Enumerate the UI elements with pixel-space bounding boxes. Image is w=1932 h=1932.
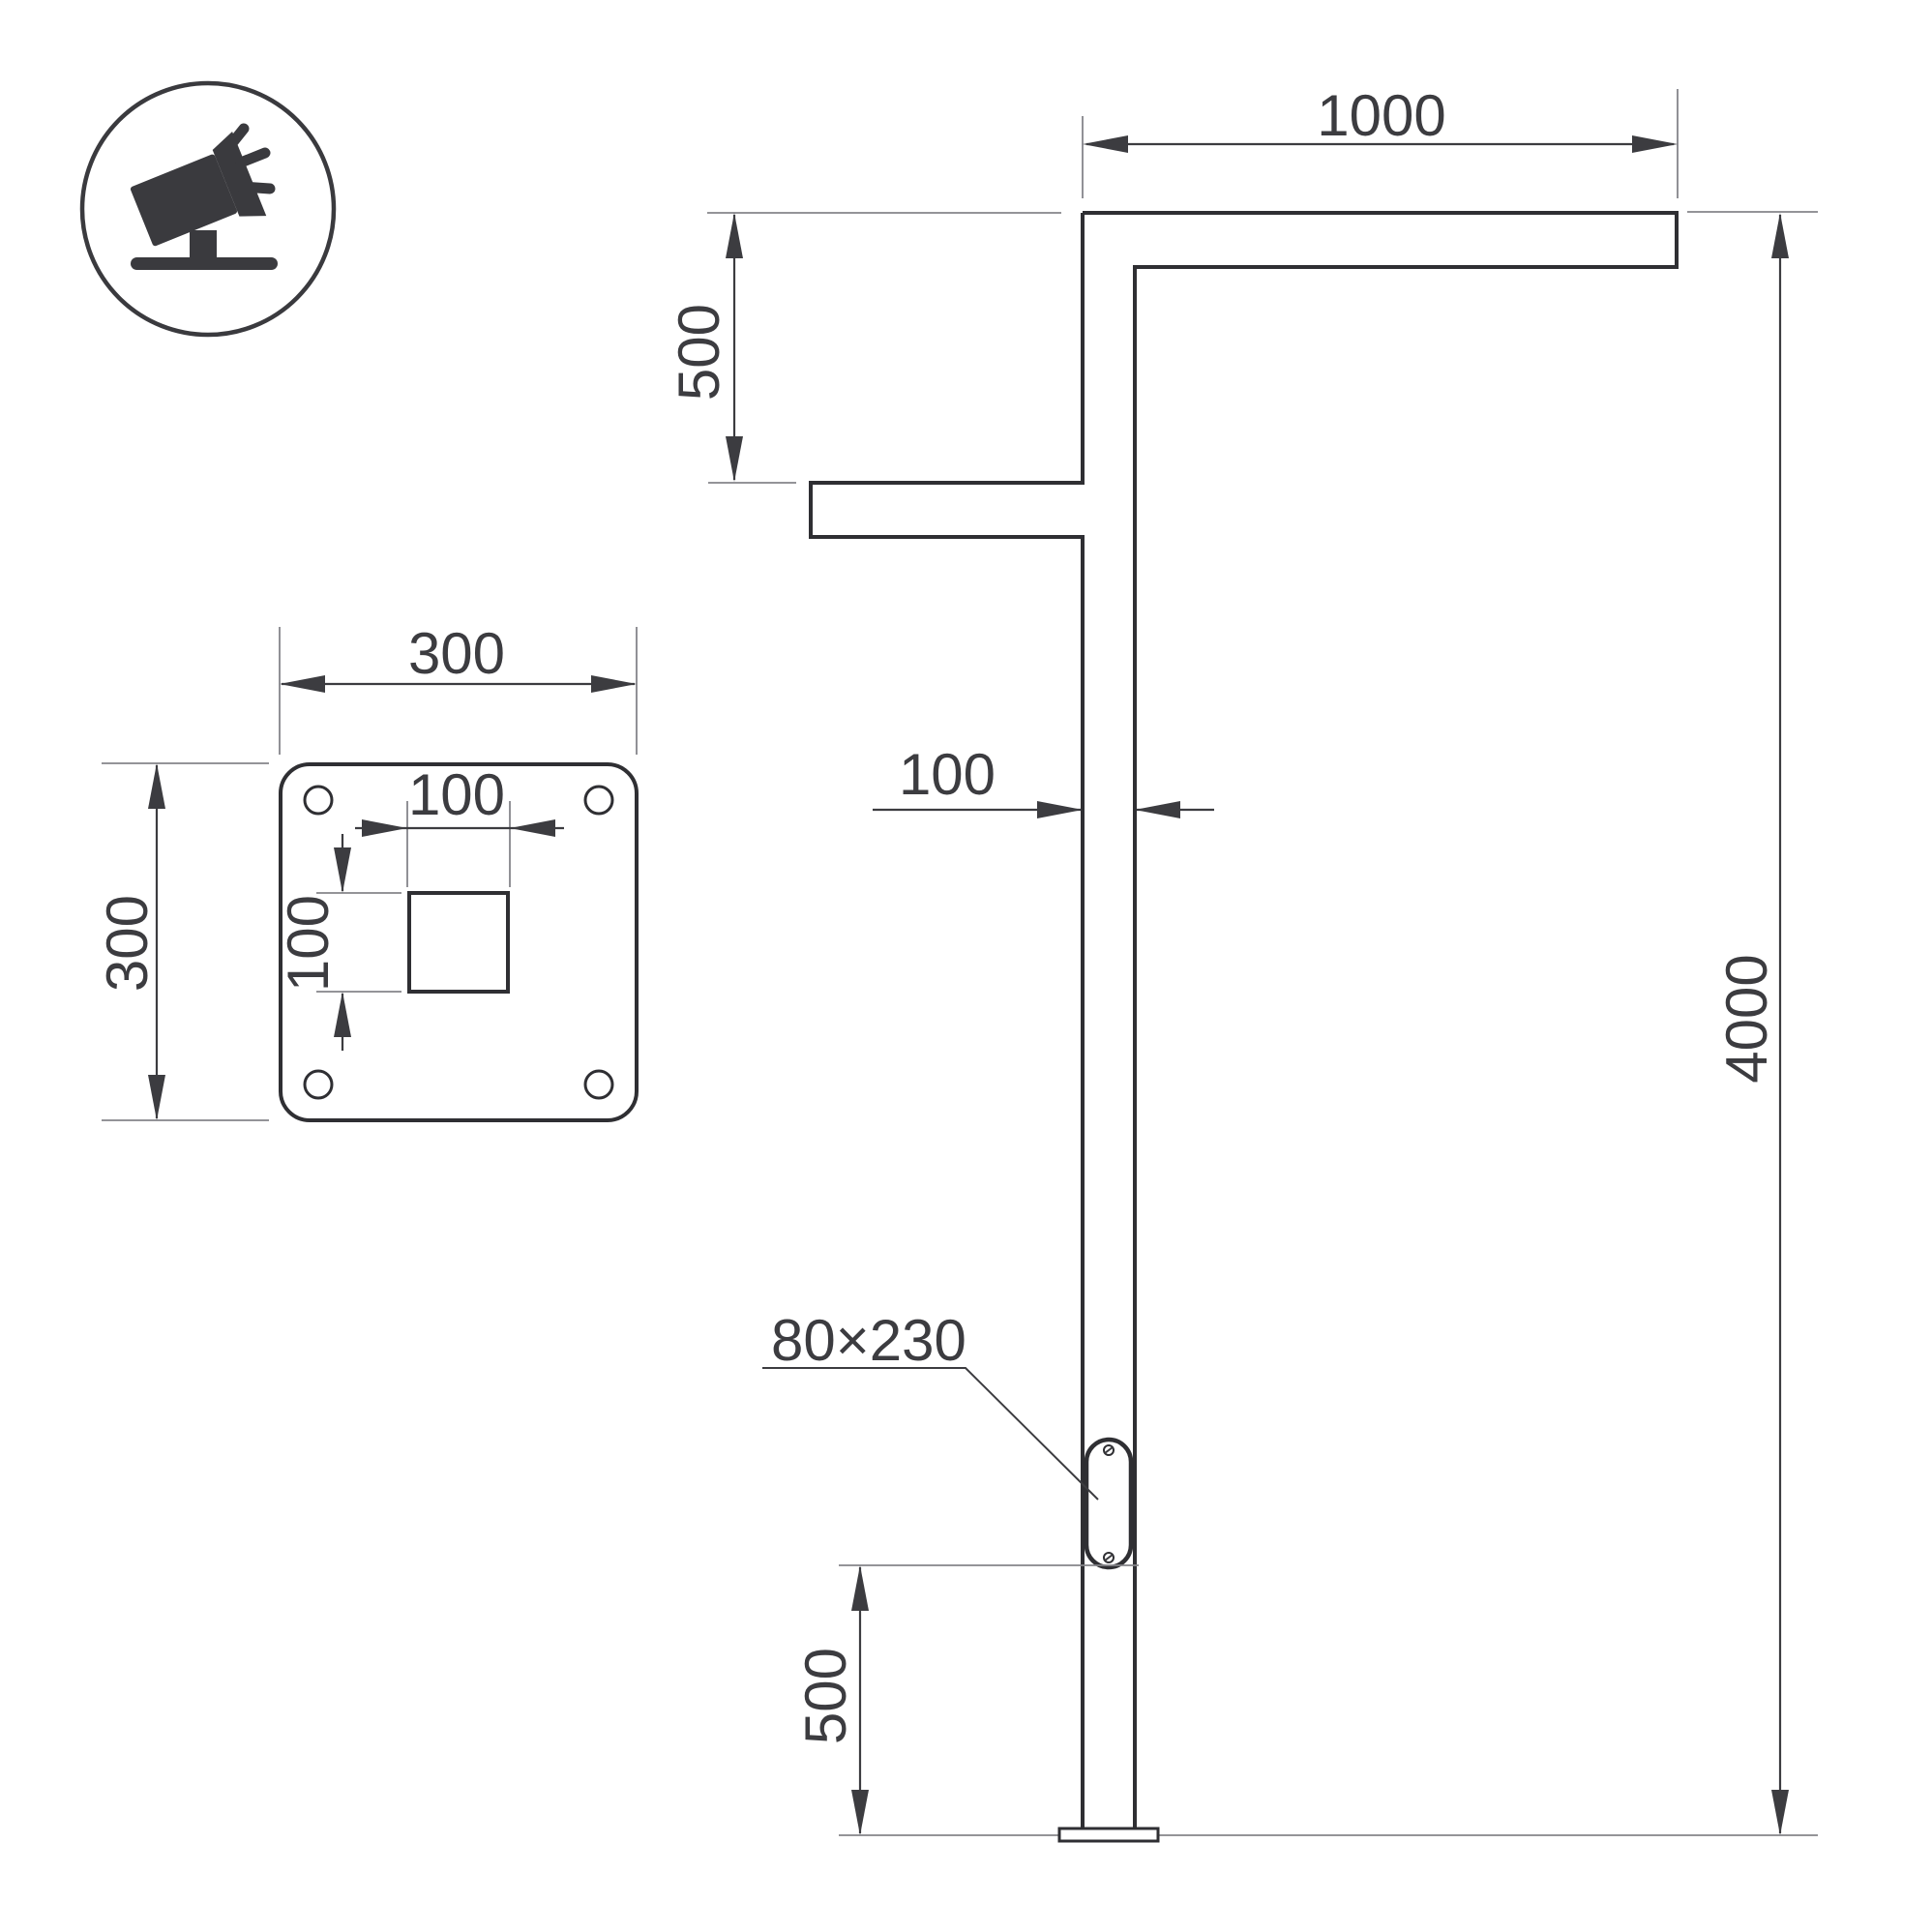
- dim-plate-height: 300: [95, 763, 269, 1120]
- dim-label-arm-length: 1000: [1317, 83, 1445, 148]
- dim-label-hole-height: 100: [276, 895, 341, 992]
- bolt-hole: [585, 787, 612, 814]
- dim-plate-width: 300: [280, 621, 637, 755]
- dim-label-plate-width: 300: [408, 621, 505, 686]
- dim-pole-height: 4000: [1687, 212, 1818, 1835]
- dim-label-door-height: 500: [793, 1648, 858, 1744]
- dim-arm-length: 1000: [1083, 83, 1678, 198]
- dim-label-door-size: 80×230: [771, 1308, 966, 1373]
- dim-label-pole-width: 100: [899, 742, 996, 807]
- technical-drawing: 300 300 100 100: [0, 0, 1932, 1932]
- leader-line: [762, 1368, 1098, 1500]
- bolt-hole: [585, 1071, 612, 1098]
- dim-door-height: 500: [793, 1565, 1139, 1835]
- pole-socket-hole: [409, 893, 508, 992]
- dim-label-hole-width: 100: [408, 762, 505, 827]
- bolt-hole: [305, 1071, 332, 1098]
- drawing-canvas: 300 300 100 100: [0, 0, 1932, 1932]
- dim-label-arm-drop: 500: [667, 304, 731, 401]
- dim-label-plate-height: 300: [95, 895, 160, 992]
- bolt-hole: [305, 787, 332, 814]
- icon-ground-bar: [131, 257, 278, 270]
- pole-outline: [811, 213, 1677, 1830]
- door-size-callout: 80×230: [762, 1308, 1098, 1500]
- dim-label-pole-height: 4000: [1714, 954, 1779, 1083]
- base-flange: [1059, 1828, 1158, 1841]
- service-door: [1086, 1440, 1131, 1567]
- dim-arm-drop: 500: [667, 213, 1061, 483]
- floodlight-icon: [82, 83, 334, 335]
- dim-pole-width: 100: [873, 742, 1214, 818]
- pole-elevation: [811, 213, 1818, 1841]
